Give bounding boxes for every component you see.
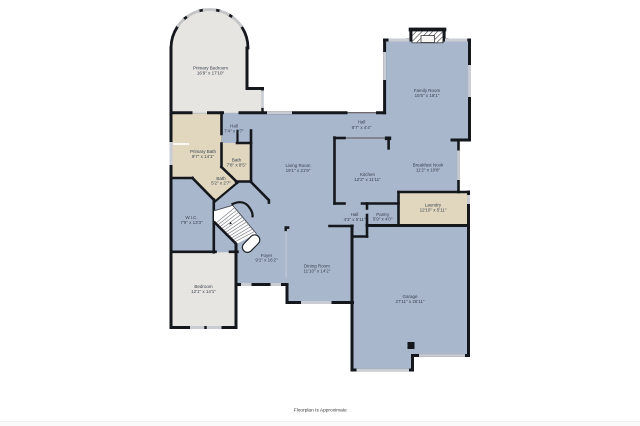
svg-text:12'1" x 14'1": 12'1" x 14'1": [191, 289, 216, 294]
svg-text:7'8" x 8'5": 7'8" x 8'5": [227, 163, 247, 168]
svg-text:11'2" x 10'8": 11'2" x 10'8": [416, 168, 441, 173]
svg-text:Primary Bedroom: Primary Bedroom: [193, 66, 228, 71]
svg-text:Living Room: Living Room: [285, 163, 310, 168]
svg-text:8'7" x 4'4": 8'7" x 4'4": [352, 125, 372, 130]
svg-text:Garage: Garage: [402, 294, 418, 299]
svg-text:Hall: Hall: [230, 123, 238, 128]
svg-text:5'9" x 4'0": 5'9" x 4'0": [373, 217, 393, 222]
svg-text:W.I.C.: W.I.C.: [185, 215, 197, 220]
svg-text:Dining Room: Dining Room: [304, 264, 330, 269]
svg-text:19'1" x 21'9": 19'1" x 21'9": [286, 168, 311, 173]
svg-text:7'4" x 5'7": 7'4" x 5'7": [224, 128, 244, 133]
svg-text:Breakfast Nook: Breakfast Nook: [413, 163, 445, 168]
svg-text:5'2" x 2'7": 5'2" x 2'7": [211, 181, 231, 186]
svg-text:Kitchen: Kitchen: [360, 172, 376, 177]
svg-text:Bedroom: Bedroom: [194, 284, 213, 289]
svg-text:11'10" x 14'2": 11'10" x 14'2": [303, 269, 330, 274]
svg-text:4'3" x 5'11": 4'3" x 5'11": [344, 217, 366, 222]
svg-text:27'11" x 26'11": 27'11" x 26'11": [395, 299, 424, 304]
svg-text:Hall: Hall: [358, 120, 366, 125]
svg-text:12'2" x 11'11": 12'2" x 11'11": [354, 177, 381, 182]
svg-text:9'7" x 14'1": 9'7" x 14'1": [192, 154, 215, 159]
svg-text:Floorplan Is Approximate: Floorplan Is Approximate: [294, 408, 347, 414]
svg-text:Laundry: Laundry: [425, 203, 442, 208]
svg-text:Hall: Hall: [351, 212, 359, 217]
svg-text:Primary Bath: Primary Bath: [190, 149, 217, 154]
svg-text:12'10" x 5'11": 12'10" x 5'11": [420, 208, 447, 213]
svg-text:16'9" x 17'10": 16'9" x 17'10": [197, 71, 225, 76]
svg-text:15'5" x 18'1": 15'5" x 18'1": [415, 93, 440, 98]
svg-text:9'1" x 16'2": 9'1" x 16'2": [255, 257, 278, 262]
svg-text:7'9" x 13'3": 7'9" x 13'3": [180, 220, 203, 225]
svg-text:Family Room: Family Room: [414, 88, 441, 93]
svg-text:Bath: Bath: [232, 158, 242, 163]
